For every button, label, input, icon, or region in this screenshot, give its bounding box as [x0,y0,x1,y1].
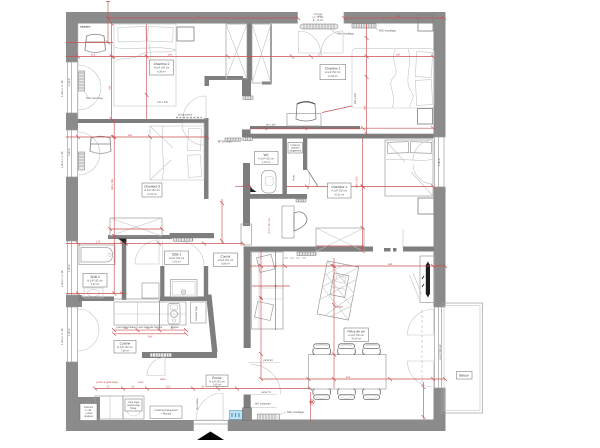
svg-text:Chambre: Chambre [80,26,91,29]
svg-text:canapé: canapé [335,306,344,309]
svg-text:Chambre 1: Chambre 1 [331,185,347,189]
svg-text:SDB 1: SDB 1 [172,252,181,256]
svg-text:Lave-vaisselle hauteur: Lave-vaisselle hauteur [137,326,162,329]
svg-text:345 x 581: 345 x 581 [111,178,114,190]
svg-text:Chambre 3: Chambre 3 [144,185,160,189]
svg-text:H.S.P 252 cm: H.S.P 252 cm [87,280,102,283]
svg-text:Balcon: Balcon [459,374,469,378]
svg-text:RAD chauffage: RAD chauffage [337,33,355,36]
svg-text:P : 10 cm: P : 10 cm [313,19,324,22]
svg-text:Rang.: Rang. [130,407,137,410]
svg-text:portes à galandage: portes à galandage [96,381,119,384]
svg-text:Cuisine: Cuisine [120,342,131,346]
svg-text:375: 375 [318,54,323,57]
svg-text:448: 448 [388,263,393,266]
svg-text:12,58 m²: 12,58 m² [328,75,338,78]
svg-text:162: 162 [124,327,129,330]
svg-text:1,90 m: 1,90 m [68,264,71,272]
svg-text:RAD chauffage: RAD chauffage [287,411,305,414]
svg-text:1,80 m / H : 98: 1,80 m / H : 98 [61,151,64,168]
svg-text:WC suspendu: WC suspendu [255,403,271,406]
svg-text:RAD chauffage: RAD chauffage [379,30,397,33]
svg-text:1,95 m / H : 98: 1,95 m / H : 98 [61,328,64,345]
svg-text:2,45 m²: 2,45 m² [213,384,222,387]
svg-text:1,90 m / H : 98: 1,90 m / H : 98 [61,270,64,287]
svg-text:+ Placard: + Placard [161,413,172,416]
svg-text:H.S.P 252 cm: H.S.P 252 cm [332,190,347,193]
svg-text:1,40 m: 1,40 m [438,158,441,166]
svg-text:Porte: Porte [293,174,296,181]
svg-text:H.S.P 252 cm: H.S.P 252 cm [144,189,159,192]
svg-text:377: 377 [198,15,203,18]
svg-text:340: 340 [396,54,401,57]
svg-text:160 x 200: 160 x 200 [354,92,357,104]
svg-text:H.S.P 237 cm: H.S.P 237 cm [268,218,271,234]
svg-text:7,80 m²: 7,80 m² [121,350,130,353]
svg-text:60 x 190: 60 x 190 [266,124,276,127]
svg-text:Couloir: Couloir [220,254,231,258]
svg-text:334: 334 [346,376,351,379]
svg-text:2,61 m²: 2,61 m² [172,261,181,264]
svg-text:1,94 m: 1,94 m [68,78,71,86]
svg-text:940 x 550: 940 x 550 [356,176,359,188]
svg-text:Pte Entrée: Pte Entrée [196,398,199,410]
svg-text:Colonne frigo: Colonne frigo [195,306,198,321]
svg-text:Chambre 2: Chambre 2 [154,62,170,66]
svg-text:rangement: rangement [289,149,301,152]
svg-text:porte 83: porte 83 [263,359,273,362]
svg-text:286: 286 [148,336,153,339]
svg-text:9,39 m²: 9,39 m² [157,70,166,73]
svg-text:1,95 m: 1,95 m [68,328,71,336]
svg-text:1,80 m: 1,80 m [68,148,71,156]
svg-text:178: 178 [96,241,101,244]
svg-text:H.S.P 320 cm: H.S.P 320 cm [218,259,233,262]
svg-text:WC: WC [264,153,270,157]
svg-text:296: 296 [168,54,173,57]
svg-text:340: 340 [364,105,367,110]
svg-text:SDB 2: SDB 2 [90,275,99,279]
svg-text:163: 163 [318,15,323,18]
svg-text:140 x 200: 140 x 200 [157,101,169,104]
svg-text:porte 73: porte 73 [261,391,271,394]
svg-text:Pièce de vie: Pièce de vie [348,329,366,333]
svg-text:BF 60 x 204: BF 60 x 204 [218,141,232,144]
svg-text:H.S.P 252 cm: H.S.P 252 cm [349,334,364,337]
svg-text:296: 296 [128,134,133,137]
svg-text:rangées: rangées [84,415,94,418]
svg-text:10,31 m²: 10,31 m² [334,193,344,196]
svg-text:en tapisserie: en tapisserie [178,114,193,117]
svg-text:294: 294 [396,15,401,18]
svg-text:Chambre 1: Chambre 1 [325,66,341,70]
svg-text:H.S.P 252 cm: H.S.P 252 cm [154,67,169,70]
svg-text:H.S.P 252 cm: H.S.P 252 cm [325,71,340,74]
svg-text:10,50 m²: 10,50 m² [147,193,157,196]
svg-text:262: 262 [91,54,96,57]
svg-text:1,94 m / H : 98: 1,94 m / H : 98 [61,80,64,97]
svg-text:245: 245 [109,85,112,90]
svg-text:152: 152 [166,386,171,389]
svg-text:8,86 m²: 8,86 m² [221,263,230,266]
svg-text:1,26 m²: 1,26 m² [262,161,271,164]
svg-text:78,45 m²: 78,45 m² [351,338,361,341]
svg-text:RAD chauffage: RAD chauffage [86,97,104,100]
svg-text:Entrée: Entrée [212,376,222,380]
svg-text:table: table [160,378,166,381]
svg-text:H.S.P 256 cm: H.S.P 256 cm [169,257,184,260]
svg-text:3,97 m²: 3,97 m² [91,283,100,286]
svg-text:évier: évier [138,381,144,384]
